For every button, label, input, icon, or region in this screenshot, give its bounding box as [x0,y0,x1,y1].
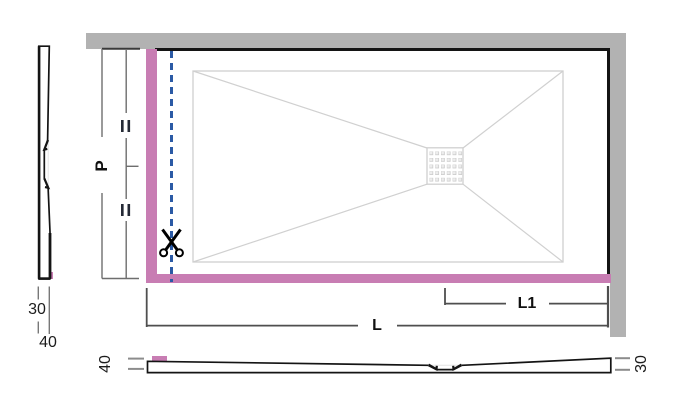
tray-cut-edge-bottom [146,274,611,284]
basin-outline [193,71,563,262]
dim-label-l: L [363,315,391,337]
front-section-dim-30: 30 [628,350,656,378]
tray-cut-edge-left [146,49,157,282]
side-section-dim-30: 30 [23,300,51,320]
dim-label-l1: L1 [510,294,544,315]
drain-grate-icon [429,151,462,181]
dim-label-p: P [87,152,115,180]
front-section-dim-40: 40 [92,350,120,378]
wall-top [86,33,626,49]
front-section-cut-mark [152,356,167,361]
front-section-profile [128,358,630,372]
side-section-profile [38,46,50,334]
equal-mark-bottom: = [112,195,142,225]
side-section-dim-40: 40 [34,333,62,353]
side-section-cut-mark [49,272,53,280]
equal-mark-top: = [112,111,142,141]
shower-tray-cutting-diagram: P = = L L1 30 40 40 30 [0,0,679,403]
tray-edge-top [155,48,610,51]
wall-right [610,48,626,337]
tray-edge-right [607,48,610,274]
cut-line-dashed [170,51,173,282]
diagram-linework [0,0,679,403]
